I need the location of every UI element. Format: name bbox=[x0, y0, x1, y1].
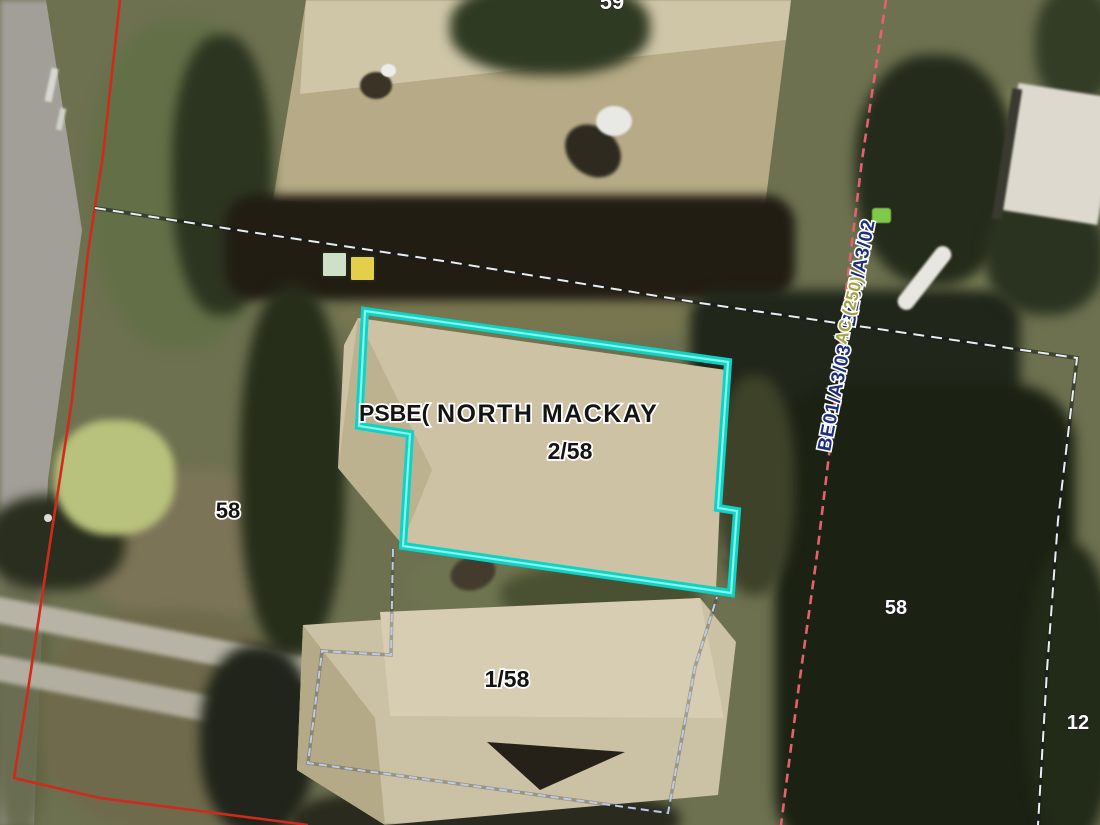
label-lot-adjacent: 12 bbox=[1067, 712, 1089, 734]
label-lot-right: 58 bbox=[885, 597, 907, 619]
aerial-map: PSBE( NORTH MACKAY 2/58 1/58 58 58 12 59… bbox=[0, 0, 1100, 825]
boundary-white-casing bbox=[95, 208, 1077, 825]
label-unit-upper: 2/58 bbox=[548, 438, 593, 464]
label-lot-left: 58 bbox=[216, 498, 240, 523]
boundary-white-dashed-line bbox=[95, 208, 1077, 825]
cadastre-overlay: PSBE( NORTH MACKAY 2/58 1/58 58 58 12 59… bbox=[0, 0, 1100, 825]
label-lot-top-partial: 59 bbox=[600, 0, 624, 14]
label-suburb: NORTH MACKAY bbox=[437, 400, 658, 428]
boundary-marker-dot bbox=[44, 514, 52, 522]
label-parcel-prefix: PSBE( bbox=[359, 400, 430, 426]
label-unit-lower: 1/58 bbox=[485, 666, 530, 692]
boundary-red-line bbox=[14, 0, 308, 825]
